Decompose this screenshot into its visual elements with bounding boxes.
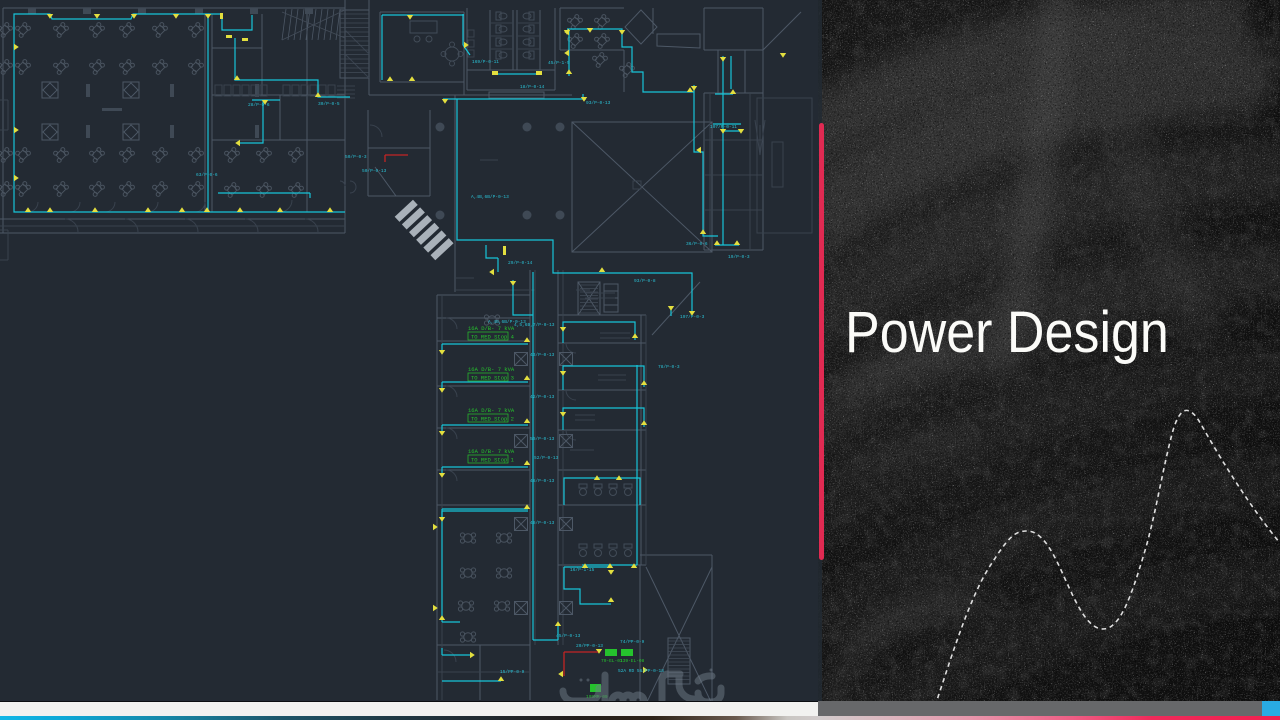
svg-text:16/P-1-15: 16/P-1-15 [570,567,595,573]
svg-text:16A D/B- 7 kVA: 16A D/B- 7 kVA [468,366,515,373]
svg-text:16A D/B- 7 kVA: 16A D/B- 7 kVA [468,325,515,332]
svg-text:16A D/B- 7 kVA: 16A D/B- 7 kVA [468,448,515,455]
svg-text:169/P-0-11: 169/P-0-11 [472,59,499,65]
svg-text:52/P-0-13: 52/P-0-13 [534,455,559,461]
svg-text:48/P-0-13: 48/P-0-13 [530,478,555,484]
svg-text:A,4B,6B/P-0-13: A,4B,6B/P-0-13 [488,319,526,325]
svg-text:42/P-0-13: 42/P-0-13 [530,394,555,400]
svg-text:197/P-0-3: 197/P-0-3 [680,314,705,320]
svg-text:139-EL-08: 139-EL-08 [620,658,645,664]
svg-text:15/PP-0-9: 15/PP-0-9 [500,669,525,675]
svg-text:50/P-0-13: 50/P-0-13 [530,436,555,442]
svg-text:93/P-0-13: 93/P-0-13 [586,100,611,106]
svg-text:93/P-0-8: 93/P-0-8 [634,278,656,284]
svg-text:19/P-0-3: 19/P-0-3 [728,254,750,260]
svg-text:50/P-0-3: 50/P-0-3 [345,154,367,160]
svg-text:18/P-0-14: 18/P-0-14 [520,84,545,90]
svg-text:45/P-1-5: 45/P-1-5 [548,60,570,66]
svg-text:107/P-0-11: 107/P-0-11 [710,124,737,130]
svg-text:29/P-0-14: 29/P-0-14 [508,260,533,266]
svg-text:A,4B,6B/P-0-13: A,4B,6B/P-0-13 [471,194,509,200]
svg-text:50/P-0-13: 50/P-0-13 [362,168,387,174]
svg-text:28/P-0-6: 28/P-0-6 [248,102,270,108]
svg-text:20/PP-0-13: 20/PP-0-13 [576,643,603,649]
svg-text:63/P-0-6: 63/P-0-6 [196,172,218,178]
svg-text:30/P-0-5: 30/P-0-5 [318,101,340,107]
svg-text:43/P-0-13: 43/P-0-13 [530,352,555,358]
svg-text:36/P-0-6: 36/P-0-6 [686,241,708,247]
svg-text:TO RED Stop 4: TO RED Stop 4 [471,334,515,341]
svg-text:49/P-0-13: 49/P-0-13 [530,520,555,526]
svg-text:74/PP-0-9: 74/PP-0-9 [620,639,645,645]
svg-text:52A RD 56/PP-0-18: 52A RD 56/PP-0-18 [618,668,664,674]
svg-text:TO RED Stop 3: TO RED Stop 3 [471,375,514,382]
svg-text:45/P-0-13: 45/P-0-13 [556,633,581,639]
svg-text:TO RED Stop 2: TO RED Stop 2 [471,416,514,423]
svg-text:78/P-0-3: 78/P-0-3 [658,364,680,370]
svg-text:16A D/B- 7 kVA: 16A D/B- 7 kVA [468,407,515,414]
svg-text:TO RED Stop 1: TO RED Stop 1 [471,457,515,464]
